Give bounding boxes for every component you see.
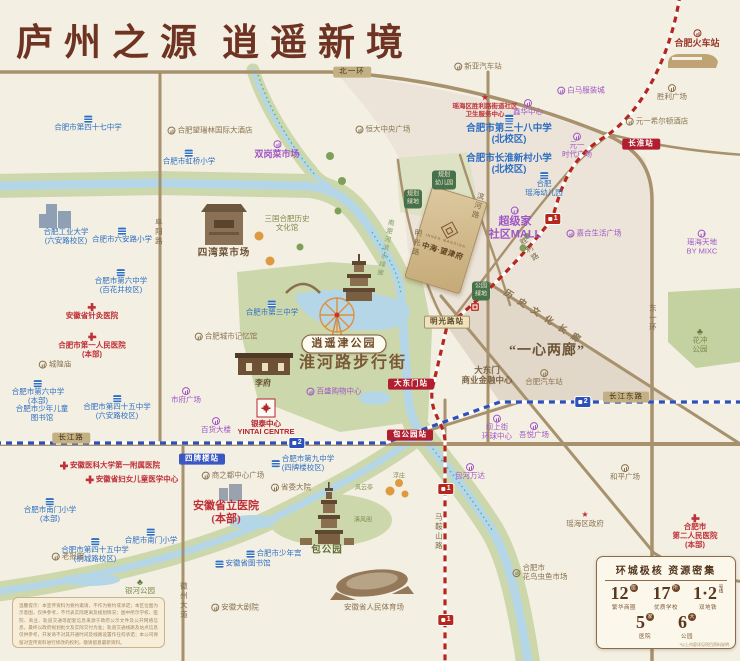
star-icon: ★ <box>453 94 518 102</box>
school-icon <box>84 116 92 123</box>
school-icon <box>185 150 193 157</box>
stat-item: 6大公园 <box>666 613 708 640</box>
circ-icon <box>52 553 60 561</box>
school-icon <box>247 551 255 558</box>
school-icon <box>117 269 125 276</box>
school-label: 合肥瑶海幼儿园 <box>525 172 563 198</box>
parklbl-label: 清风阁 <box>354 517 372 524</box>
project-logo-icon <box>440 221 458 239</box>
green-box-label: 规划绿地 <box>404 190 422 209</box>
mall-label: 双岗菜市场 <box>254 140 299 160</box>
st-blue-label: 四牌楼站 <box>179 454 225 465</box>
landmark-label: 合肥城市记忆馆 <box>195 333 258 342</box>
street-big-label: 淮河路步行街 <box>299 355 407 374</box>
landmark-label: 安徽大剧院 <box>211 604 259 613</box>
title-part2: 逍遥新境 <box>222 23 414 64</box>
school-icon <box>34 380 42 387</box>
landmark-label: 合肥市花鸟虫鱼市场 <box>513 564 568 582</box>
school-label: 合肥市少年儿童图书馆 <box>16 405 69 423</box>
mall-label: 包河万达 <box>455 463 485 481</box>
landmark-label: ★瑶海区政府 <box>566 511 604 529</box>
green-box-label: 规划幼儿园 <box>432 171 456 190</box>
landmark-label: 安徽省人民体育场 <box>344 604 404 613</box>
stat-label: 医院 <box>624 632 666 640</box>
mb-label: 2 <box>574 396 591 408</box>
school-label: 合肥市南门小学(本部) <box>24 498 77 524</box>
landmark-label: 商之都中心广场 <box>202 472 265 481</box>
stat-label: 双地铁 <box>687 603 729 611</box>
mall-label: 嘉合生活广场 <box>567 230 622 239</box>
cross-icon <box>691 514 699 522</box>
stat-unit: 号线 <box>718 584 723 593</box>
stat-label: 优质学校 <box>645 603 687 611</box>
landmark-label: 恒大中央广场 <box>356 126 411 135</box>
hospital-label: ★瑶海区胜利路街道社区卫生服务中心 <box>453 94 518 118</box>
circ-icon <box>530 422 538 430</box>
landmark-label: 省委大院 <box>271 484 311 493</box>
cross-icon <box>86 476 94 484</box>
mall-label: 百盛购物中心 <box>307 388 362 397</box>
redlogo-label: 银泰中心YINTAI CENTRE <box>238 420 295 437</box>
rd-badge-label: 长江东路 <box>603 392 649 403</box>
school-label: 合肥市六安路小学 <box>92 228 152 245</box>
stat-item: 1·2号线双地铁 <box>687 584 729 611</box>
circ-icon <box>511 207 519 215</box>
hospital-label: 合肥市第一人民医院(本部) <box>58 333 126 360</box>
circ-icon <box>39 361 47 369</box>
title-part1: 庐州之源 <box>16 23 208 64</box>
stat-number: 5 <box>636 612 645 632</box>
school-icon <box>46 498 54 505</box>
circ-icon <box>693 29 701 37</box>
page-title: 庐州之源逍遥新境 <box>16 12 414 66</box>
school-label: 安徽省图书馆 <box>216 560 271 569</box>
train-art <box>668 54 718 68</box>
circ-icon <box>211 604 219 612</box>
landmark-label: 元一希尔顿酒店 <box>626 118 689 127</box>
st-tan-label: 明光路站 <box>424 316 470 329</box>
mb-label: 1 <box>544 213 561 225</box>
circ-icon <box>698 230 706 238</box>
mb-label: 1 <box>437 483 454 495</box>
stat-number: 17 <box>653 583 671 603</box>
xiaoyao-pagoda-art <box>343 254 375 301</box>
rd-badge-label: 长江路 <box>52 433 90 444</box>
st-red-label: 包公园站 <box>387 430 433 441</box>
rd-vert-label: 徽州大道 <box>179 582 188 620</box>
circ-icon <box>271 484 279 492</box>
circ-icon <box>557 87 565 95</box>
stat-number: 12 <box>611 583 629 603</box>
school-label: 合肥市第四十七中学 <box>54 116 122 133</box>
circ-icon <box>202 472 210 480</box>
school-icon <box>268 301 276 308</box>
mall-label: 吾悦广场 <box>519 422 549 440</box>
school-icon <box>113 395 121 402</box>
stat-item: 12座繁华商圈 <box>603 584 645 611</box>
park-pond <box>359 391 391 405</box>
hospital-label: 安徽省妇女儿童医学中心 <box>86 476 179 485</box>
hospital-building-art <box>219 484 242 501</box>
circ-icon <box>524 99 532 107</box>
school-label: 合肥市第九中学(四牌楼校区) <box>272 455 335 473</box>
parklbl-label: 风云亭 <box>355 485 373 492</box>
mall-label: 百货大楼 <box>201 417 231 435</box>
st-red-label: 大东门站 <box>388 379 434 390</box>
circ-icon <box>621 464 629 472</box>
mall-label: 坝上街环球中心 <box>482 415 512 442</box>
circ-icon <box>626 118 634 126</box>
circ-icon <box>168 127 176 135</box>
stat-unit: 家 <box>646 613 654 621</box>
landmark-label: 老报馆 <box>52 553 85 562</box>
landmark-label: 和平广场 <box>610 464 640 482</box>
circ-icon <box>356 126 364 134</box>
yintai-logo-icon <box>257 399 276 418</box>
red-sq-label <box>471 303 479 311</box>
poi-badge-label: 逍遥津公园 <box>302 335 387 354</box>
rd-vert-label: 阜阳路 <box>154 218 163 247</box>
school-icon <box>91 538 99 545</box>
stat-unit: 大 <box>688 613 696 621</box>
mall-label: 市府广场 <box>171 387 201 405</box>
hospital-label: 安徽医科大学第一附属医院 <box>60 462 160 471</box>
mb-label: 2 <box>288 437 305 449</box>
circ-icon <box>212 417 220 425</box>
school-label: 合肥市第三十八中学(北校区) <box>466 115 552 145</box>
stat-number: 1·2 <box>693 583 717 603</box>
landmark-label: 新亚汽车站 <box>454 63 502 72</box>
brown-serif-label: 李府 <box>255 378 271 387</box>
circ-icon <box>195 333 203 341</box>
stat-unit: 座 <box>630 584 638 592</box>
cross-icon <box>60 462 68 470</box>
star-icon: ★ <box>566 511 604 519</box>
river-lake <box>60 574 120 586</box>
school-label: 合肥市少年宫 <box>247 550 302 559</box>
park-bold-label: 包公园 <box>311 545 343 556</box>
hospital-label: 合肥市第二人民医院(本部) <box>673 514 718 550</box>
tree-icon: ♣ <box>693 328 708 336</box>
circ-icon <box>567 230 575 238</box>
school-label: 合肥市虹桥小学 <box>163 150 216 167</box>
green-box-label: 公园绿地 <box>472 282 490 301</box>
hospital-label: 安徽省立医院(本部) <box>193 500 259 526</box>
circ-icon <box>493 415 501 423</box>
mb-label: 1 <box>437 614 454 626</box>
hfut-building-art <box>39 204 71 228</box>
school-icon <box>216 561 224 568</box>
school-label: 合肥市第四十五中学(六安路校区) <box>83 395 151 421</box>
stat-number: 6 <box>678 612 687 632</box>
quote-big-label: “一心两廊” <box>509 344 585 361</box>
school-label: 合肥市南门小学 <box>125 529 178 546</box>
parklbl-label: ♣银河公园 <box>125 578 155 596</box>
divider <box>605 580 727 581</box>
circ-icon <box>668 84 676 92</box>
circ-icon <box>513 569 521 577</box>
circ-icon <box>307 388 315 396</box>
landmark-label: 合肥望瑞林国际大酒店 <box>168 127 253 136</box>
school-label: 合肥市第六中学(本部) <box>12 380 65 406</box>
landmark-label: 城隍庙 <box>39 361 72 370</box>
parklbl-label: 浮庄 <box>393 473 405 480</box>
tree-icon: ♣ <box>125 578 155 586</box>
landmark-label: 胜利广场 <box>657 84 687 102</box>
landmark-label: 大东门商业金融中心 <box>461 365 512 385</box>
stats-footnote: *以上内容详见项目资料说明 <box>601 642 731 648</box>
stat-label: 公园 <box>666 632 708 640</box>
mall-label: 超级家社区MALL <box>489 207 542 242</box>
circ-icon <box>182 387 190 395</box>
cross-icon <box>88 303 96 311</box>
landmark-label: 合肥汽车站 <box>525 369 563 387</box>
rd-vert-label: 东一环 <box>648 304 657 333</box>
school-icon <box>118 228 126 235</box>
circ-icon <box>454 63 462 71</box>
rd-vert-label: 马鞍山路 <box>434 513 443 551</box>
disclaimer-box: 温馨提示：本宣传资料为要约邀请，不作为要约或承诺；本区位图为示意图，仅供参考，不… <box>12 597 165 648</box>
mall-label: 白马服装城 <box>557 87 605 96</box>
school-icon <box>147 529 155 536</box>
school-label: 合肥市第三中学 <box>246 301 299 318</box>
map-canvas: 庐州之源逍遥新境 INNER MANSION 中海·望津府 环城极核 资源密集 … <box>0 0 740 661</box>
mall-label: 鑫华中心 <box>513 99 543 117</box>
railstation-label: 合肥火车站 <box>674 29 719 49</box>
hospital-label: 安徽省针灸医院 <box>66 303 119 321</box>
circ-icon <box>540 369 548 377</box>
mall-label: 元一时代广场 <box>562 133 592 160</box>
circ-icon <box>466 463 474 471</box>
stat-item: 17所优质学校 <box>645 584 687 611</box>
school-icon <box>272 461 280 468</box>
stats-grid: 12座繁华商圈17所优质学校1·2号线双地铁5家医院6大公园 <box>601 583 731 641</box>
stats-panel: 环城极核 资源密集 12座繁华商圈17所优质学校1·2号线双地铁5家医院6大公园… <box>596 556 736 649</box>
stat-label: 繁华商圈 <box>603 603 645 611</box>
school-label: 合肥市第六中学(百花井校区) <box>95 269 148 295</box>
school-icon <box>540 172 548 179</box>
stats-panel-title: 环城极核 资源密集 <box>601 562 731 577</box>
parklbl-label: 三国合肥历史文化馆 <box>265 215 310 233</box>
school-label: 合肥工业大学(六安路校区) <box>44 228 89 246</box>
stat-item: 5家医院 <box>624 613 666 640</box>
parklbl-label: ♣花冲公园 <box>693 328 708 355</box>
rd-badge-label: 北一环 <box>333 67 371 78</box>
cross-icon <box>88 333 96 341</box>
stat-unit: 所 <box>672 584 680 592</box>
st-red-label: 长淮站 <box>622 139 660 150</box>
stadium-art <box>330 566 414 601</box>
brown-serif-label: 四湾菜市场 <box>198 248 251 259</box>
siwan-market-art <box>201 204 247 245</box>
circ-icon <box>573 133 581 141</box>
circ-icon <box>273 140 281 148</box>
mall-label: 瑶海天地BY MIXC <box>687 230 718 257</box>
lifu-mansion-art <box>235 353 293 375</box>
